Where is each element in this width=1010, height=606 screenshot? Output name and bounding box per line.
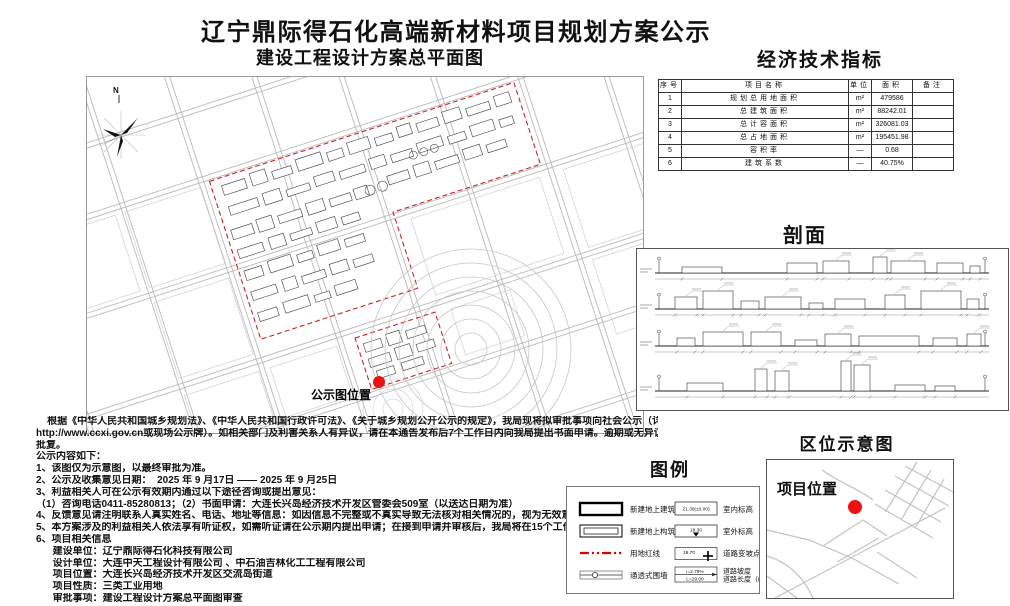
indoor-elevation-symbol: 21.30(±0.00): [675, 502, 717, 515]
notice-line: 6、项目相关信息: [36, 534, 658, 546]
svg-text:21.30(±0.00): 21.30(±0.00): [682, 507, 710, 513]
legend-label: 通透式围墙: [630, 570, 668, 580]
road-break-point-symbol: 18.70: [675, 548, 717, 562]
section-strip: [640, 283, 989, 317]
notice-line: 项目性质：三类工业用地: [36, 581, 658, 593]
legend-label: 道路变坡点标高: [723, 548, 759, 558]
legend-label: 用地红线: [630, 548, 660, 558]
indicators-header-row: 序号 项目名称 单位 面积 备注: [659, 80, 954, 93]
section-strip: [640, 324, 990, 354]
section-drawings: [637, 249, 1008, 410]
project-location-label: 项目位置: [777, 478, 837, 499]
indicator-row: 4 总占地面积 m² 195451.98: [659, 132, 954, 145]
section-strip: [640, 249, 989, 281]
new-building-symbol: [580, 503, 622, 515]
indicator-row: 3 总计容面积 m² 326081.03: [659, 119, 954, 132]
notice-line: 审批事项：建设工程设计方案总平面图审查: [36, 593, 658, 605]
planning-notice-sheet: 辽宁鼎际得石化高端新材料项目规划方案公示 建设工程设计方案总平面图 N: [0, 0, 1010, 606]
legend-drawing: 新建地上建筑物 新建地上构筑物 用地红线 通透式围墙 21.30(±0.00) …: [567, 487, 759, 593]
svg-text:N: N: [113, 86, 119, 95]
location-map-title: 区位示意图: [757, 430, 937, 455]
notice-line: 根据《中华人民共和国城乡规划法》、《中华人民共和国行政许可法》、《关于城乡规划公…: [36, 416, 658, 428]
col-header: 单位: [849, 80, 872, 93]
page-subtitle: 建设工程设计方案总平面图: [160, 44, 580, 70]
indicator-row: 2 总建筑面积 m² 88242.01: [659, 106, 954, 119]
col-header: 备注: [913, 80, 954, 93]
legend-label: 道路坡度: [723, 567, 751, 576]
notice-line: （1）咨询电话0411-85280813；（2）书面申请：大连长兴岛经济技术开发…: [36, 499, 658, 511]
notice-line: 设计单位：大连中天工程设计有限公司 、中石油吉林化工工程有限公司: [36, 558, 658, 570]
svg-text:L=29.00: L=29.00: [686, 577, 704, 583]
notice-line: 4、反馈意见请注明联系人真实姓名、电话、地址等信息：如因信息不完整或不真实导致无…: [36, 510, 658, 522]
road-grade-symbol: i=2.79% L=29.00: [675, 567, 717, 583]
col-header: 面积: [872, 80, 913, 93]
sections-panel: [636, 248, 1009, 411]
open-fence-symbol: [580, 571, 622, 579]
legend-label: 室内标高: [723, 504, 753, 514]
indicator-row: 5 容积率 — 0.68: [659, 145, 954, 158]
svg-text:i=2.79%: i=2.79%: [686, 569, 704, 575]
notice-board-label: 公示图位置: [311, 387, 371, 402]
notice-line: http://www.ccxi.gov.cn或现场公示牌）。如相关部门及利害关系…: [36, 428, 658, 440]
north-arrow-icon: N: [97, 86, 145, 159]
sections-title: 剖面: [700, 219, 910, 248]
notice-line: 2、公示及收集意见日期： 2025 年 9 月17日 —— 2025 年 9 月…: [36, 475, 658, 487]
notice-line: 5、本方案涉及的利益相关人依法享有听证权，如需听证请在公示期内提出申请；在接到申…: [36, 522, 658, 534]
svg-text:18.70: 18.70: [683, 550, 695, 556]
indicator-row: 1 规划总用地面积 m² 479586: [659, 93, 954, 106]
project-location-dot: [848, 500, 862, 514]
indicator-row: 6 建筑系数 — 40.75%: [659, 158, 954, 171]
indicators-table: 序号 项目名称 单位 面积 备注 1 规划总用地面积 m² 479586 2 总…: [658, 79, 954, 171]
notice-line: 建设单位：辽宁鼎际得石化科技有限公司: [36, 546, 658, 558]
notice-line: 项目位置：大连长兴岛经济技术开发区交流岛街道: [36, 569, 658, 581]
notice-line: 公示内容如下：: [36, 451, 658, 463]
outdoor-elevation-symbol: 18.30: [675, 525, 717, 537]
location-map-panel: 项目位置: [766, 459, 954, 599]
new-structure-symbol: [580, 525, 622, 537]
col-header: 项目名称: [682, 80, 849, 93]
site-plan-drawing: N 公示图位置: [87, 77, 643, 433]
notice-board-dot: [373, 376, 385, 388]
legend-panel: 新建地上建筑物 新建地上构筑物 用地红线 通透式围墙 21.30(±0.00) …: [566, 486, 760, 594]
legend-title: 图例: [625, 456, 715, 482]
page-title: 辽宁鼎际得石化高端新材料项目规划方案公示: [0, 12, 912, 47]
notice-line: 1、该图仅为示意图，以最终审批为准。: [36, 463, 658, 475]
legend-label: 道路长度（m）: [723, 575, 759, 584]
section-strip: [640, 353, 989, 399]
building-blocks: [216, 90, 581, 408]
indicators-title: 经济技术指标: [665, 45, 975, 72]
notice-line: 批复。: [36, 440, 658, 452]
site-plan-panel: N 公示图位置: [86, 76, 644, 434]
legend-label: 室外标高: [723, 526, 753, 536]
notice-text-block: 根据《中华人民共和国城乡规划法》、《中华人民共和国行政许可法》、《关于城乡规划公…: [36, 416, 658, 605]
col-header: 序号: [659, 80, 682, 93]
notice-line: 3、利益相关人可在公示有效期内通过以下途径咨询或提出意见：: [36, 487, 658, 499]
